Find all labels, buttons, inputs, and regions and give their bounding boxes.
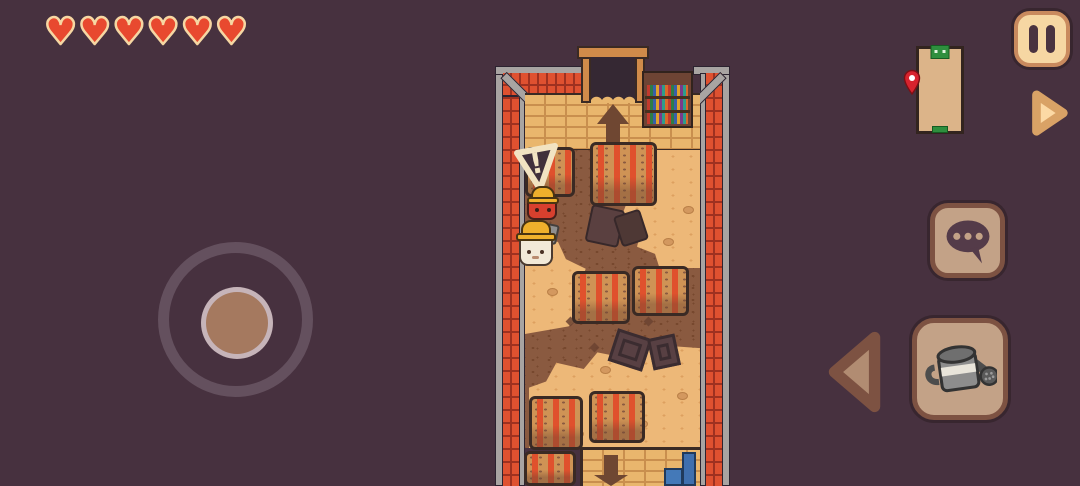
joystick-knob[interactable] [201, 287, 273, 359]
stairs-down-arrow [604, 455, 618, 477]
brick-column-right [706, 73, 722, 486]
game-viewport: ! [495, 0, 730, 486]
arrow-right-icon [1036, 95, 1063, 131]
heart-icon: ♥ [215, 12, 248, 52]
brick-column-left [503, 73, 519, 486]
frame-rail-left [495, 66, 503, 486]
arrow-left-icon [834, 338, 874, 407]
bookshelf [642, 71, 693, 128]
heart-icon: ♥ [112, 12, 145, 52]
water-pump [682, 452, 696, 486]
next-room-button[interactable] [1024, 84, 1072, 142]
game-screen: ♥♥♥♥♥♥ [0, 0, 1080, 486]
heart-icon: ♥ [44, 12, 77, 52]
pebble [663, 238, 674, 246]
crop-bed [589, 391, 645, 443]
frame-rail-right [722, 66, 730, 486]
book-row [647, 85, 688, 96]
chat-button[interactable] [930, 203, 1005, 278]
health-bar: ♥♥♥♥♥♥ [44, 12, 248, 52]
crop-bed [529, 396, 583, 450]
pebble [547, 288, 558, 296]
book-row [647, 99, 688, 110]
pebble [683, 206, 694, 214]
crop-bed [524, 451, 576, 486]
minimap-exit-bottom [932, 126, 948, 133]
heart-icon: ♥ [181, 12, 214, 52]
speech-bubble-icon [940, 213, 996, 269]
heart-icon: ♥ [78, 12, 111, 52]
crop-bed [632, 266, 689, 316]
crop-bed [590, 142, 657, 206]
watering-can-icon [923, 332, 997, 406]
pause-button[interactable] [1014, 11, 1070, 67]
watering-can-button[interactable] [912, 318, 1008, 420]
heart-icon: ♥ [147, 12, 180, 52]
pebble [600, 366, 611, 374]
minimap-exit-top [931, 45, 950, 59]
gate-scallops [591, 87, 635, 103]
player-character [513, 216, 559, 270]
book-row [647, 113, 688, 124]
pause-icon [1029, 25, 1055, 53]
player-pin-icon [902, 69, 922, 95]
pebble [677, 392, 688, 400]
gate-post-left [581, 57, 591, 103]
prev-room-button[interactable] [818, 322, 890, 422]
minimap [916, 46, 964, 134]
crop-bed [572, 271, 630, 324]
